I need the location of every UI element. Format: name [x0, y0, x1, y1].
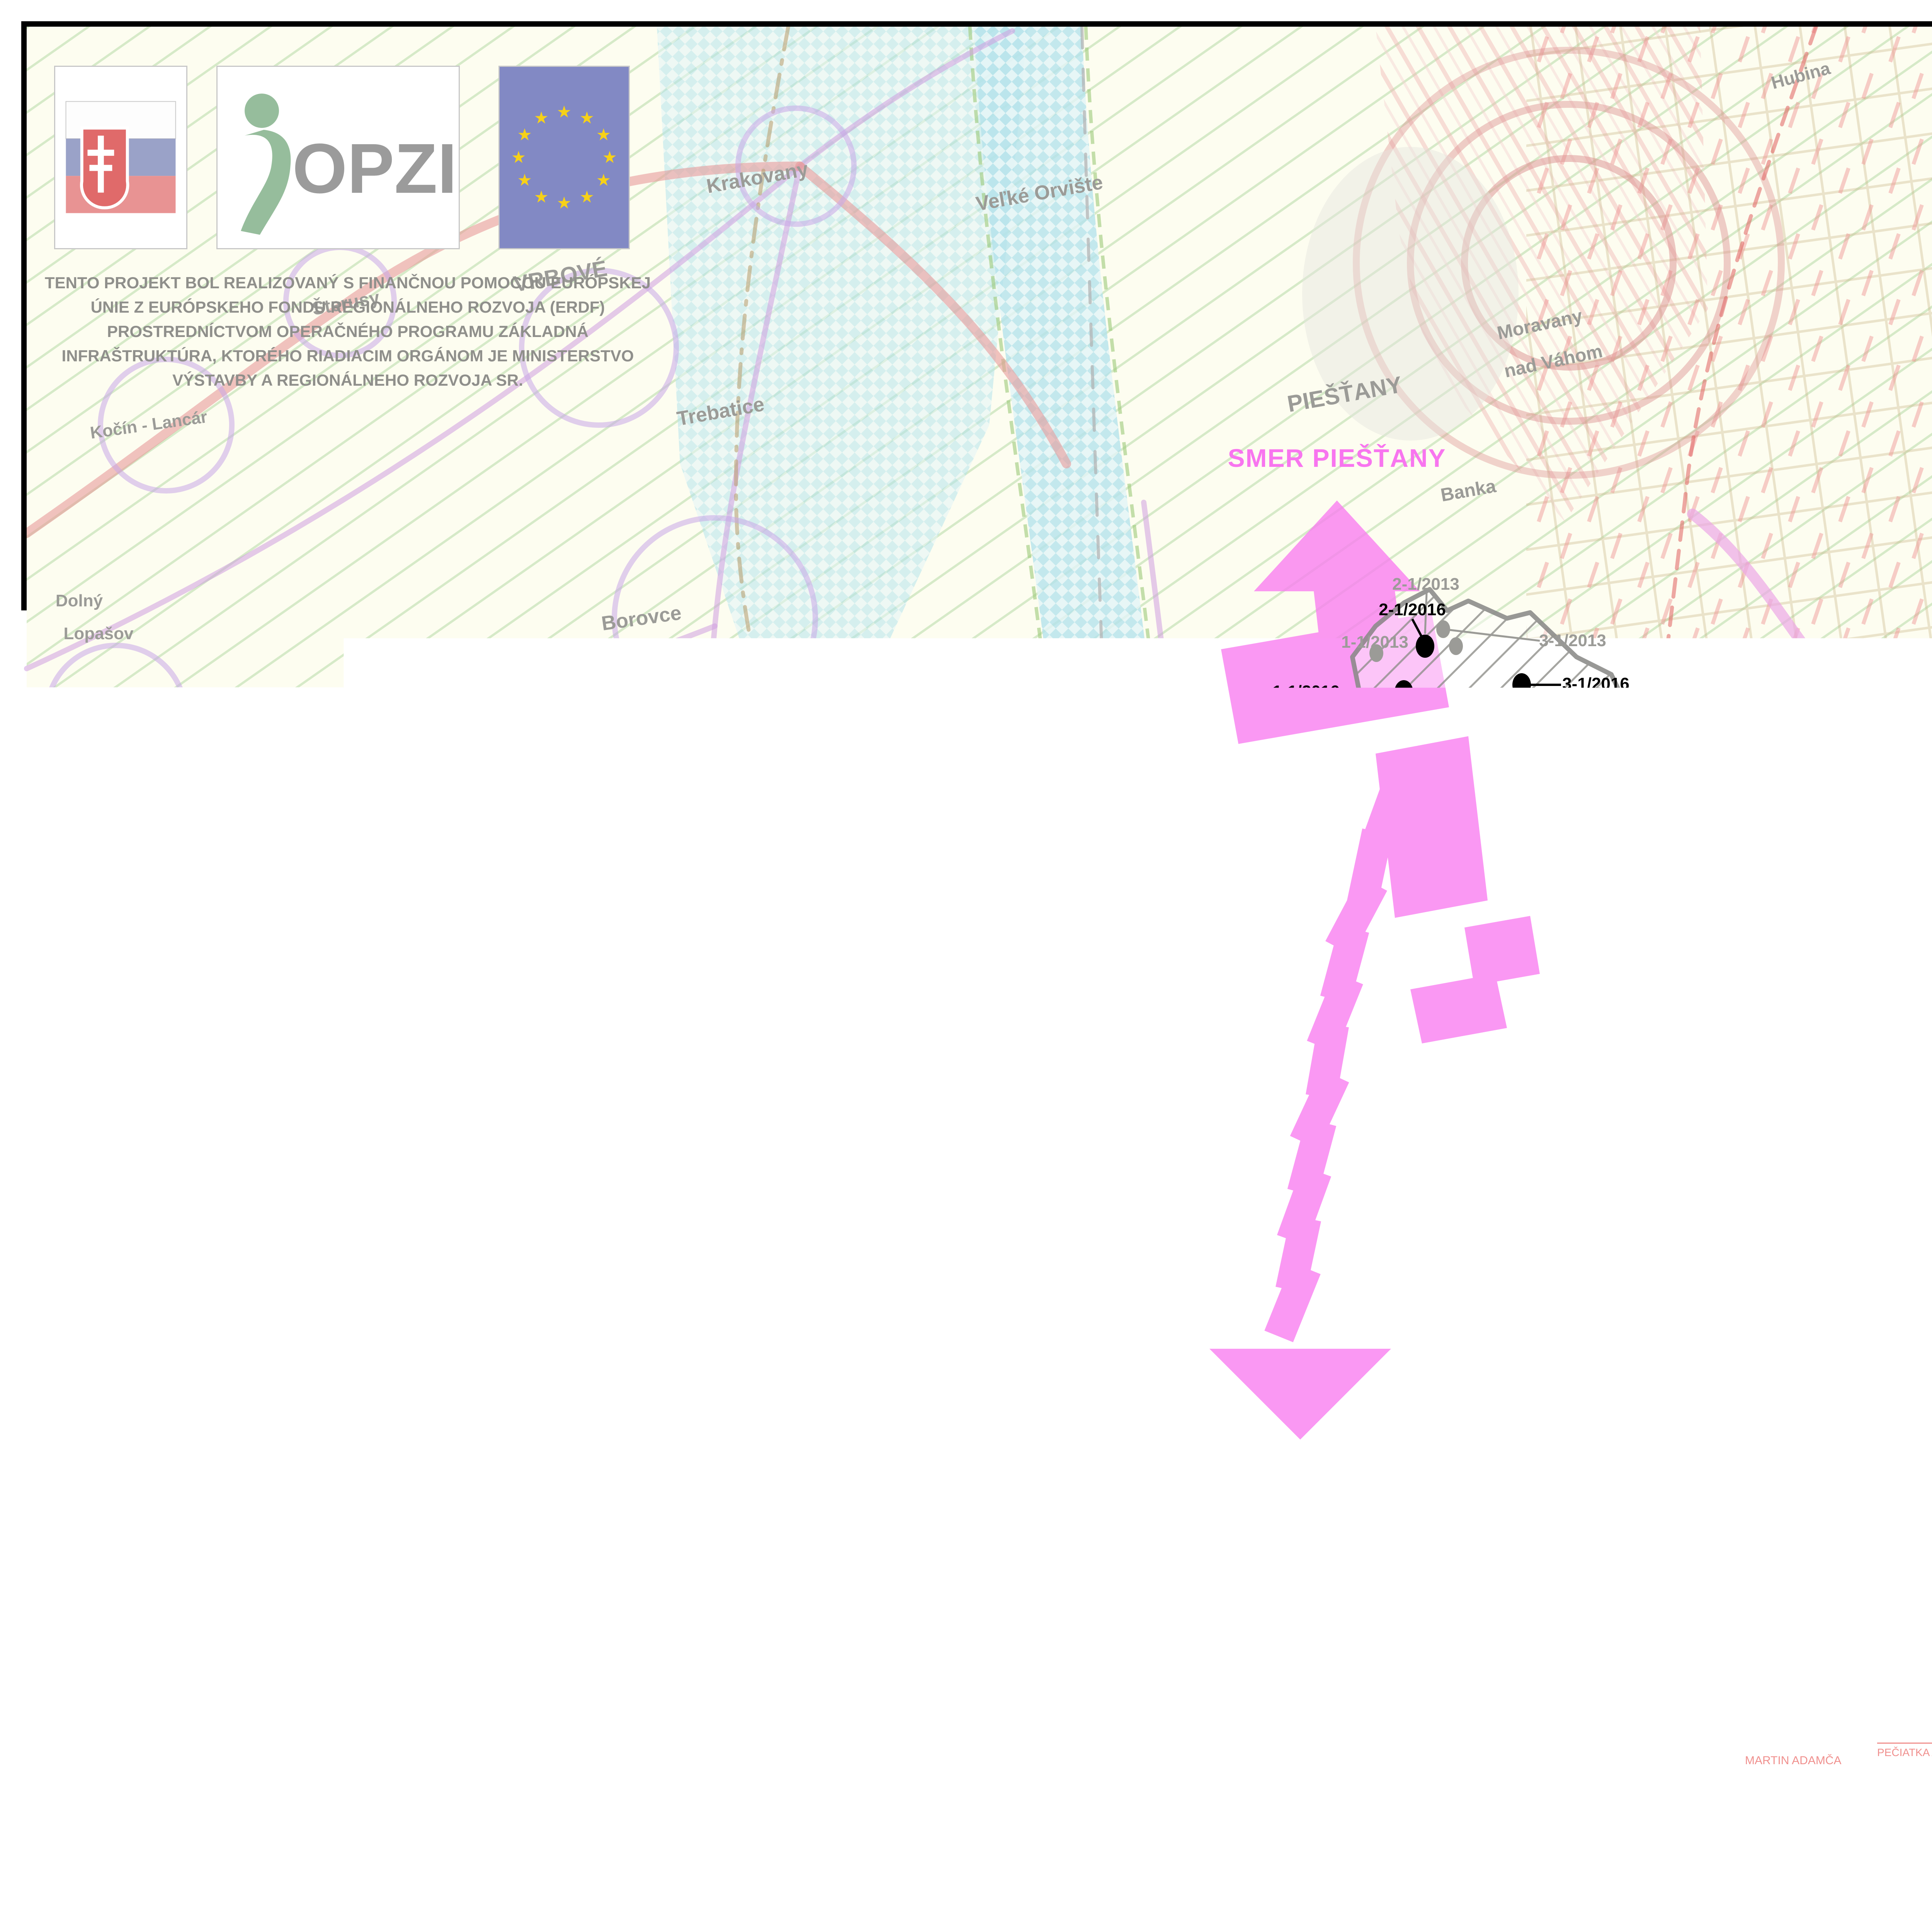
place-label-nizna: Nižná: [150, 1005, 206, 1036]
change-label-7-1-2013: 7-1/2013: [1490, 785, 1557, 804]
svg-text:★: ★: [580, 109, 595, 128]
place-label-partial-1: vské: [32, 1632, 72, 1656]
titlebar-top-border: [21, 1774, 1932, 1780]
obstaravatel-name: OBEC RATNOVCE,: [1634, 1804, 1793, 1825]
place-label-madunice: Madunice: [982, 1528, 1077, 1564]
place-label-kocin-lancar: Kočín - Lancár: [89, 407, 209, 443]
svg-text:OPZI: OPZI: [293, 129, 457, 208]
change-label-4-1-2013: 4-1/2013: [1265, 752, 1332, 772]
drawing-sheet: Hubina Krakovany Veľké Orvište Moravany …: [0, 0, 1932, 1918]
document-subtitle: ZMENY A DOPLNKY č. 1/2016 ČISTOPIS: [883, 1836, 1146, 1853]
stamp-line4: ZO DŇA ...........................: [1738, 1689, 1932, 1702]
spracovatel-address: DROTÁRSKA CESTA 37, 811 02 BRATISLAVA: [159, 1833, 539, 1853]
svg-text:★: ★: [596, 126, 611, 144]
place-label-velke-orviste: Veľké Orvište: [974, 171, 1105, 216]
titlebar-divider-3: [1454, 1780, 1457, 1866]
obstaravatel-label: OBSTARÁVATEĽ :: [1659, 1785, 1768, 1800]
place-label-velke: Veľké: [540, 1283, 596, 1314]
place-label-osovce: ošovce: [36, 1380, 107, 1409]
svg-text:★: ★: [517, 126, 532, 144]
svg-text:★: ★: [596, 171, 611, 190]
eu-flag-box: ★★★ ★★★ ★★★ ★★★: [498, 66, 630, 249]
place-label-hubina: Hubina: [1769, 58, 1833, 94]
place-label-krakovany: Krakovany: [705, 157, 810, 198]
place-label-ratnovce: RATNOVCE: [1408, 704, 1621, 743]
place-label-koplotovce: Koplotovce: [1175, 1618, 1286, 1651]
place-label-svrbice: Svrbice: [1686, 1106, 1761, 1139]
direction-label-hlohovec-trnava: SMER HLOHOVEC, TRNAVA: [1114, 1496, 1472, 1526]
stamp-mayor-label: STAROSTA OBCE:: [1745, 1737, 1844, 1750]
place-label-borovce: Borovce: [600, 601, 683, 635]
place-label-nad-vahom: nad Váhom: [1502, 340, 1604, 382]
change-label-8-1-2013: 8-1/2013: [1564, 888, 1631, 907]
project-funding-text: TENTO PROJEKT BOL REALIZOVANÝ S FINANČNO…: [35, 271, 661, 392]
place-label-cervenik: Červeník: [804, 1704, 892, 1739]
change-label-1-1-2013: 1-1/2013: [1341, 633, 1408, 652]
direction-label-piestany: SMER PIEŠŤANY: [1228, 443, 1446, 473]
stamp-title: OBEC RATNOVCE: [1738, 1600, 1932, 1625]
place-label-dolny: Dolný: [56, 591, 103, 611]
document-title: ÚZEMNÝ PLÁN OBCE RATNOVCE: [777, 1790, 1253, 1824]
change-label-2-1-2013: 2-1/2013: [1392, 575, 1459, 594]
svg-text:★: ★: [534, 109, 549, 128]
obec-ratnovce-stamp: OBEC RATNOVCE POTVRDZUJE PLATNOSŤ ÚZEMNO…: [1735, 1586, 1932, 1779]
spracovatel-label: SPRACOVATEĽ:: [159, 1789, 247, 1802]
svg-text:★: ★: [534, 188, 549, 206]
change-label-5-1-2016: 5-1/2016: [1184, 909, 1251, 929]
place-label-vesele: Veselé: [719, 927, 784, 959]
change-label-6-1-2016: 6-1/2016: [1495, 762, 1562, 781]
titlebar-divider-1: [639, 1780, 643, 1866]
place-label-banka: Banka: [1439, 475, 1497, 506]
place-label-oresany: Orešany: [1813, 1216, 1896, 1250]
place-label-trebatice: Trebatice: [675, 393, 766, 431]
change-label-9-1-2013: 9-1/2013: [1483, 939, 1550, 959]
upn-logo-icon: [28, 1784, 151, 1865]
place-label-dubovany: Dubovany: [671, 1112, 770, 1149]
change-label-4-1-2016: 4-1/2016: [1251, 716, 1318, 735]
svg-text:★: ★: [517, 171, 532, 190]
svg-text:★: ★: [602, 148, 617, 167]
coat-of-arms-icon: [1394, 1784, 1450, 1865]
change-label-6-1-2013: 6-1/2013: [1509, 821, 1576, 841]
stamp-mayor-name: MARTIN ADAMČA: [1745, 1754, 1841, 1767]
place-label-kostolany: Kostoľany: [502, 1315, 604, 1351]
svg-text:★: ★: [557, 103, 572, 121]
stamp-signature-line: [1877, 1743, 1932, 1744]
opzi-logo-icon: OPZI: [218, 67, 459, 248]
stamp-line1: POTVRDZUJE PLATNOSŤ: [1738, 1637, 1932, 1650]
place-label-partial-2: nice: [30, 1661, 66, 1685]
coat-of-arms: [1394, 1784, 1450, 1865]
place-label-pecenady: Pečeňady: [648, 1557, 744, 1593]
slovak-flag-icon: [55, 67, 186, 248]
place-label-sokolovce: Sokolovce: [1431, 1002, 1533, 1034]
slovak-flag-box: [54, 66, 187, 249]
place-label-salgovce: Šalgovce: [1757, 1064, 1848, 1099]
change-label-2-1-2016: 2-1/2016: [1379, 600, 1446, 619]
place-label-jalsove: Jalšové: [1411, 1282, 1486, 1311]
titlebar-divider-2: [1390, 1780, 1393, 1866]
map-source-note: SPRACOVANÉ DO PODKLADU PREVZATÉHO Z ÚPN …: [630, 1746, 1603, 1763]
obstaravatel-address: OÚ RATNOVCE 152, 922 31 SOKOLOVCE: [1540, 1829, 1888, 1850]
place-label-otrokovce: Otrokovce: [1659, 1524, 1761, 1564]
subtitle-text: ZMENY A DOPLNKY č. 1/2016: [883, 1836, 1078, 1852]
upn-logo: [28, 1784, 151, 1865]
change-label-10-1-2013: 10-1/2013: [1449, 978, 1525, 997]
place-label-rakovice: Rakovice: [672, 763, 762, 798]
place-label-lopasov: Lopašov: [64, 624, 134, 643]
place-label-moravany: Moravany: [1495, 305, 1585, 344]
change-label-1-1-2016: 1-1/2016: [1272, 682, 1340, 701]
eu-flag-icon: ★★★ ★★★ ★★★ ★★★: [500, 67, 629, 248]
place-label-horne: Horné: [1691, 1493, 1752, 1525]
place-label-ardanovce: Ardanovce: [1792, 955, 1898, 993]
place-label-piestany: PIEŠŤANY: [1285, 371, 1404, 417]
svg-text:★: ★: [580, 188, 595, 206]
change-label-3-1-2013: 3-1/2013: [1539, 631, 1606, 650]
svg-text:★: ★: [557, 194, 572, 213]
subtitle-cistopis: ČISTOPIS: [1082, 1836, 1146, 1852]
opzi-logo-box: OPZI: [216, 66, 460, 249]
spracovatel-name: ÚPn s.r.o.,: [159, 1808, 246, 1829]
place-label-drahovce: Drahovce: [1093, 1127, 1186, 1157]
svg-text:★: ★: [511, 148, 526, 167]
place-label-ratkovce: Ratkovce: [632, 1690, 724, 1726]
change-label-3-1-2016: 3-1/2016: [1562, 674, 1629, 694]
change-label-5-1-2013: 5-1/2013: [1274, 822, 1342, 841]
map-labels-layer: Hubina Krakovany Veľké Orvište Moravany …: [0, 0, 1932, 1779]
stamp-signature-label: PEČIATKA A PODPIS:: [1877, 1746, 1932, 1759]
